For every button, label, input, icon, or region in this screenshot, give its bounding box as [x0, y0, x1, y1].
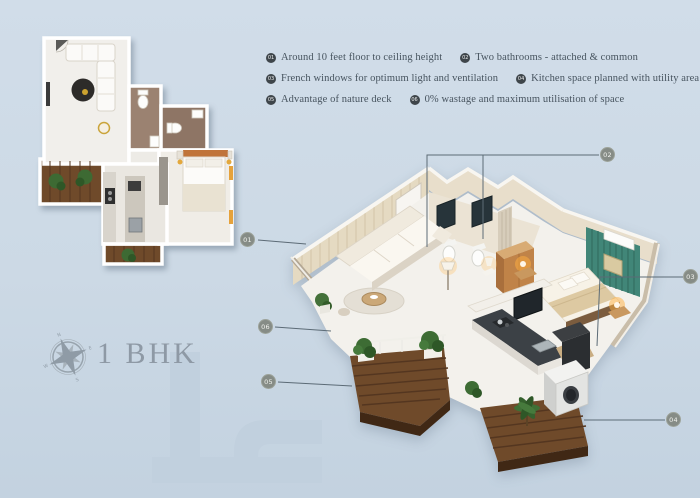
bed-2d	[177, 150, 232, 211]
plan-title: 1 BHK	[97, 337, 198, 371]
floor-plan-3d	[291, 168, 659, 472]
feature-item: 02 Two bathrooms - attached & common	[460, 52, 638, 63]
wardrobe-2d	[159, 157, 168, 205]
logo-watermark	[152, 352, 322, 483]
callout-line-06	[275, 327, 331, 331]
feature-item: 03 French windows for optimum light and …	[266, 73, 498, 84]
feature-text: French windows for optimum light and ven…	[281, 73, 498, 84]
callout-badge-04: 04	[666, 412, 681, 427]
feature-number-badge: 06	[410, 95, 420, 105]
feature-item: 05 Advantage of nature deck	[266, 94, 392, 105]
feature-number-badge: 02	[460, 53, 470, 63]
callout-badge-03: 03	[683, 269, 698, 284]
compass-w: W	[43, 363, 50, 370]
feature-text: Advantage of nature deck	[281, 94, 392, 105]
feature-row: 01 Around 10 feet floor to ceiling heigh…	[266, 47, 698, 68]
feature-list: 01 Around 10 feet floor to ceiling heigh…	[266, 47, 698, 110]
compass-n: N	[57, 332, 62, 339]
callout-line-01	[258, 240, 306, 244]
feature-number-badge: 05	[266, 95, 276, 105]
bedroom-window-2d	[229, 166, 233, 180]
callout-badge-06: 06	[258, 319, 273, 334]
feature-row: 05 Advantage of nature deck 06 0% wastag…	[266, 89, 698, 110]
side-stool-3d	[338, 308, 350, 316]
feature-item: 01 Around 10 feet floor to ceiling heigh…	[266, 52, 442, 63]
feature-number-badge: 03	[266, 74, 276, 84]
compass-s: S	[75, 377, 80, 384]
rug-accent-2d	[82, 89, 88, 95]
callout-badge-01: 01	[240, 232, 255, 247]
feature-row: 03 French windows for optimum light and …	[266, 68, 698, 89]
callout-badge-05: 05	[261, 374, 276, 389]
floor-plan-2d	[40, 38, 233, 264]
compass-icon: N E S W	[41, 330, 95, 384]
feature-text: Around 10 feet floor to ceiling height	[281, 52, 442, 63]
feature-text: 0% wastage and maximum utilisation of sp…	[425, 94, 625, 105]
feature-item: 04 Kitchen space planned with utility ar…	[516, 73, 699, 84]
brochure-canvas: 01 Around 10 feet floor to ceiling heigh…	[0, 0, 700, 498]
round-table-2d	[99, 123, 110, 134]
feature-number-badge: 01	[266, 53, 276, 63]
feature-text: Kitchen space planned with utility area	[531, 73, 699, 84]
compass-e: E	[88, 345, 93, 352]
feature-text: Two bathrooms - attached & common	[475, 52, 638, 63]
feature-item: 06 0% wastage and maximum utilisation of…	[410, 94, 625, 105]
tv-unit-2d	[46, 82, 50, 106]
callout-badge-02: 02	[600, 147, 615, 162]
bedroom-window-2-2d	[229, 210, 233, 224]
feature-number-badge: 04	[516, 74, 526, 84]
callout-line-05	[278, 382, 352, 386]
